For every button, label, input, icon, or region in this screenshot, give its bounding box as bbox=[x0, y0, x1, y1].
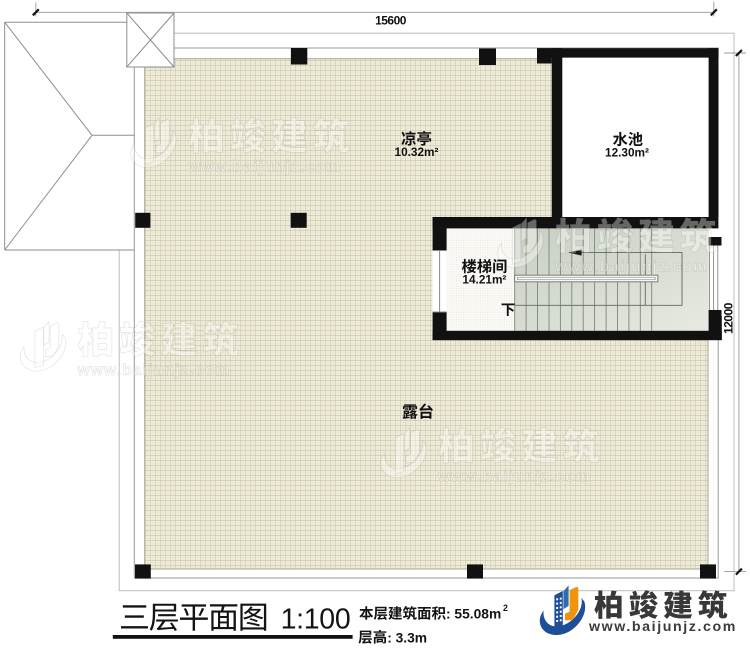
svg-text:10.32m²: 10.32m² bbox=[395, 145, 439, 159]
svg-text:14.21m²: 14.21m² bbox=[462, 273, 506, 287]
svg-text:: 3.3m: : 3.3m bbox=[387, 630, 427, 645]
svg-text:www.baijunjz.com: www.baijunjz.com bbox=[588, 619, 737, 635]
svg-text:1:100: 1:100 bbox=[281, 603, 351, 635]
svg-text:: 55.08m: : 55.08m bbox=[446, 607, 501, 622]
svg-text:12000: 12000 bbox=[721, 302, 735, 334]
svg-text:15600: 15600 bbox=[375, 14, 407, 28]
svg-text:2: 2 bbox=[503, 603, 508, 613]
svg-text:12.30m²: 12.30m² bbox=[605, 146, 649, 160]
